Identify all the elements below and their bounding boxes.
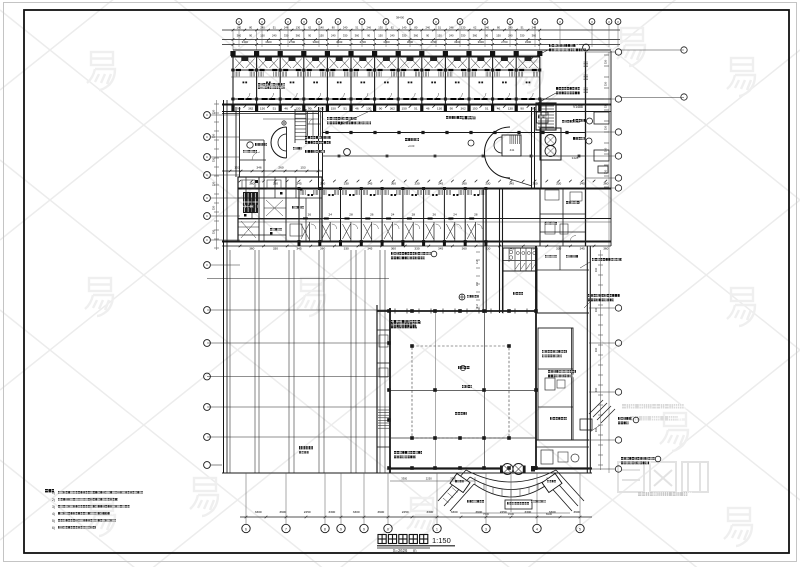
svg-text:240: 240 [272,34,277,38]
svg-text:51: 51 [438,25,441,29]
svg-text:345: 345 [580,247,585,251]
svg-text:330: 330 [556,182,561,186]
svg-text:3600: 3600 [478,40,485,44]
svg-text:5): 5) [52,519,55,523]
svg-text:360: 360 [391,247,396,251]
svg-text:362: 362 [461,107,466,111]
svg-text:246: 246 [449,25,454,29]
svg-text:362: 362 [390,107,395,111]
svg-text:360: 360 [532,182,537,186]
svg-text:62: 62 [473,25,476,29]
svg-text:46: 46 [355,107,359,111]
svg-text:S=2626: S=2626 [393,548,408,553]
svg-text:330: 330 [556,247,561,251]
svg-text:26: 26 [308,213,312,217]
svg-text:330: 330 [212,181,216,186]
svg-text:360: 360 [249,182,254,186]
svg-text:362: 362 [319,107,324,111]
svg-text:90: 90 [308,34,311,38]
svg-text:m: m [413,548,417,553]
svg-text:240: 240 [508,34,513,38]
svg-text:C: C [206,263,208,267]
svg-text:330: 330 [461,34,466,38]
svg-text:330: 330 [343,34,348,38]
svg-text:140: 140 [402,25,407,29]
svg-text:V1488: V1488 [573,105,583,109]
svg-text:214: 214 [476,303,479,308]
svg-text:3: 3 [485,527,487,531]
svg-text:51: 51 [343,107,347,111]
svg-text:51: 51 [273,25,276,29]
svg-text:330: 330 [402,34,407,38]
svg-text:46: 46 [284,107,288,111]
svg-text:1): 1) [52,491,55,495]
svg-text:9: 9 [363,527,365,531]
svg-text:9: 9 [340,527,342,531]
svg-text:360: 360 [296,34,301,38]
svg-text:6): 6) [52,526,55,530]
svg-text:51: 51 [521,25,524,29]
svg-text:C: C [206,238,208,242]
svg-text:360: 360 [603,247,608,251]
svg-text:4.500: 4.500 [101,512,109,516]
svg-text:360: 360 [320,182,325,186]
svg-text:1: 1 [436,527,438,531]
svg-text:4): 4) [52,512,55,516]
svg-text:3300: 3300 [525,40,532,44]
svg-text:330: 330 [520,34,525,38]
svg-text:345: 345 [296,247,301,251]
svg-text:38400: 38400 [396,16,405,20]
svg-text:3): 3) [52,505,55,509]
svg-text:C: C [206,113,208,117]
svg-text:214: 214 [476,259,479,264]
svg-text:150: 150 [378,34,383,38]
svg-text:330: 330 [414,182,419,186]
svg-text:150: 150 [402,107,407,111]
svg-text:345: 345 [509,182,514,186]
svg-text:360: 360 [462,247,467,251]
svg-text:330: 330 [212,133,216,138]
svg-text:240: 240 [331,34,336,38]
svg-text:90: 90 [308,107,312,111]
svg-text:3600: 3600 [475,510,482,514]
svg-text:330: 330 [212,229,216,234]
svg-text:28: 28 [349,213,353,217]
svg-text:3300: 3300 [451,510,458,514]
svg-text:260: 260 [278,166,283,170]
svg-text:3300: 3300 [255,510,262,514]
svg-text:330: 330 [485,182,490,186]
svg-text:2700: 2700 [360,40,367,44]
svg-text:130: 130 [437,107,442,111]
svg-text:240: 240 [343,25,348,29]
svg-text:80: 80 [249,25,252,29]
svg-text:3300: 3300 [524,510,531,514]
svg-text:51: 51 [273,107,277,111]
svg-text:330: 330 [604,103,608,108]
svg-text:C: C [206,214,208,218]
svg-text:+0.00: +0.00 [408,144,415,148]
svg-text:330: 330 [604,125,608,130]
svg-text:2250: 2250 [304,510,311,514]
svg-text:360: 360 [532,34,537,38]
svg-text:345: 345 [296,182,301,186]
svg-text:345: 345 [367,247,372,251]
svg-text:3300: 3300 [242,40,249,44]
svg-text:246: 246 [532,25,537,29]
svg-text:360: 360 [391,182,396,186]
svg-text:150: 150 [260,34,265,38]
svg-text:360: 360 [249,247,254,251]
svg-text:1500: 1500 [508,512,515,516]
svg-text:8: 8 [324,527,326,531]
svg-text:1:150: 1:150 [432,536,451,545]
svg-text:330: 330 [212,205,216,210]
svg-text:26: 26 [370,213,374,217]
svg-text:3300: 3300 [328,510,335,514]
svg-text:150: 150 [472,107,477,111]
svg-text:150: 150 [437,34,442,38]
svg-text:130: 130 [366,107,371,111]
svg-text:120: 120 [92,491,97,495]
svg-text:360: 360 [355,34,360,38]
svg-text:3300: 3300 [353,510,360,514]
svg-text:130: 130 [295,107,300,111]
svg-text:C: C [206,155,208,159]
svg-text:62: 62 [308,25,311,29]
svg-text:240: 240 [260,25,265,29]
svg-text:4: 4 [536,527,538,531]
svg-text:330: 330 [594,267,598,272]
svg-text:3300: 3300 [383,40,390,44]
svg-text:130: 130 [378,25,383,29]
svg-text:2): 2) [52,498,55,502]
svg-text:90: 90 [485,34,488,38]
svg-text:330: 330 [604,59,608,64]
svg-text:3300: 3300 [450,477,456,481]
svg-text:345: 345 [438,247,443,251]
svg-text:214: 214 [476,281,479,286]
svg-text:330: 330 [594,347,598,352]
svg-text:80: 80 [497,25,500,29]
svg-text:360: 360 [473,34,478,38]
svg-text:130: 130 [461,25,466,29]
svg-text:360: 360 [414,34,419,38]
svg-text:153: 153 [234,166,239,170]
svg-text:360: 360 [320,247,325,251]
svg-text:2700: 2700 [289,40,296,44]
svg-text:0: 0 [387,527,389,531]
svg-text:140: 140 [319,25,324,29]
svg-text:345: 345 [367,182,372,186]
svg-text:345: 345 [580,182,585,186]
svg-text:90: 90 [237,107,241,111]
svg-text:150: 150 [319,34,324,38]
svg-text:90: 90 [520,107,524,111]
svg-text:240: 240 [449,34,454,38]
svg-text:330: 330 [604,81,608,86]
svg-text:345: 345 [438,182,443,186]
svg-text:330: 330 [594,307,598,312]
svg-text:24: 24 [328,213,332,217]
svg-text:90: 90 [367,34,370,38]
svg-text:62: 62 [391,25,394,29]
svg-text:90: 90 [426,34,429,38]
svg-text:3300: 3300 [549,510,556,514]
svg-text:C: C [206,196,208,200]
svg-text:346: 346 [256,166,261,170]
svg-text:360: 360 [462,182,467,186]
svg-text:7: 7 [285,527,287,531]
svg-text:2250: 2250 [402,510,409,514]
svg-text:2250: 2250 [426,477,432,481]
svg-text:C: C [206,135,208,139]
svg-text:51: 51 [485,107,489,111]
svg-text:5: 5 [579,527,581,531]
svg-text:90: 90 [450,107,454,111]
svg-text:130: 130 [296,25,301,29]
svg-text:24: 24 [391,213,395,217]
svg-text:330: 330 [344,182,349,186]
svg-text:2250: 2250 [500,510,507,514]
svg-text:240: 240 [425,25,430,29]
svg-text:330: 330 [212,109,216,114]
svg-text:C: C [206,173,208,177]
svg-text:360: 360 [603,182,608,186]
svg-text:3300: 3300 [312,40,319,44]
svg-text:24: 24 [453,213,457,217]
svg-text:3300: 3300 [426,510,433,514]
svg-text:330: 330 [212,157,216,162]
svg-text:3600: 3600 [336,40,343,44]
svg-text:330: 330 [273,182,278,186]
svg-text:28: 28 [412,213,416,217]
svg-text:330: 330 [414,247,419,251]
svg-text:3300: 3300 [454,40,461,44]
svg-text:46: 46 [426,107,430,111]
svg-text:150: 150 [496,34,501,38]
svg-text:441: 441 [510,148,515,152]
svg-text:3600: 3600 [279,510,286,514]
svg-text:330: 330 [604,169,608,174]
svg-text:240: 240 [390,34,395,38]
svg-text:330: 330 [594,387,598,392]
svg-text:90: 90 [249,34,252,38]
svg-text:51: 51 [414,107,418,111]
svg-text:150: 150 [260,107,265,111]
svg-text:246: 246 [366,25,371,29]
svg-text:2700: 2700 [501,40,508,44]
svg-text:153: 153 [300,166,305,170]
svg-text:3600: 3600 [377,510,384,514]
svg-text:6: 6 [245,527,247,531]
svg-text:80: 80 [414,25,417,29]
svg-text:46: 46 [497,107,501,111]
svg-text:26: 26 [432,213,436,217]
svg-text:130: 130 [508,107,513,111]
svg-text:28: 28 [474,213,478,217]
svg-text:330: 330 [273,247,278,251]
svg-text:330: 330 [344,247,349,251]
svg-text:90: 90 [379,107,383,111]
svg-text:51: 51 [355,25,358,29]
svg-text:3600: 3600 [573,510,580,514]
svg-text:3600: 3600 [265,40,272,44]
svg-text:240: 240 [508,25,513,29]
svg-text:150: 150 [331,107,336,111]
svg-text:3300: 3300 [401,477,407,481]
svg-text:362: 362 [248,107,253,111]
svg-text:80: 80 [332,25,335,29]
